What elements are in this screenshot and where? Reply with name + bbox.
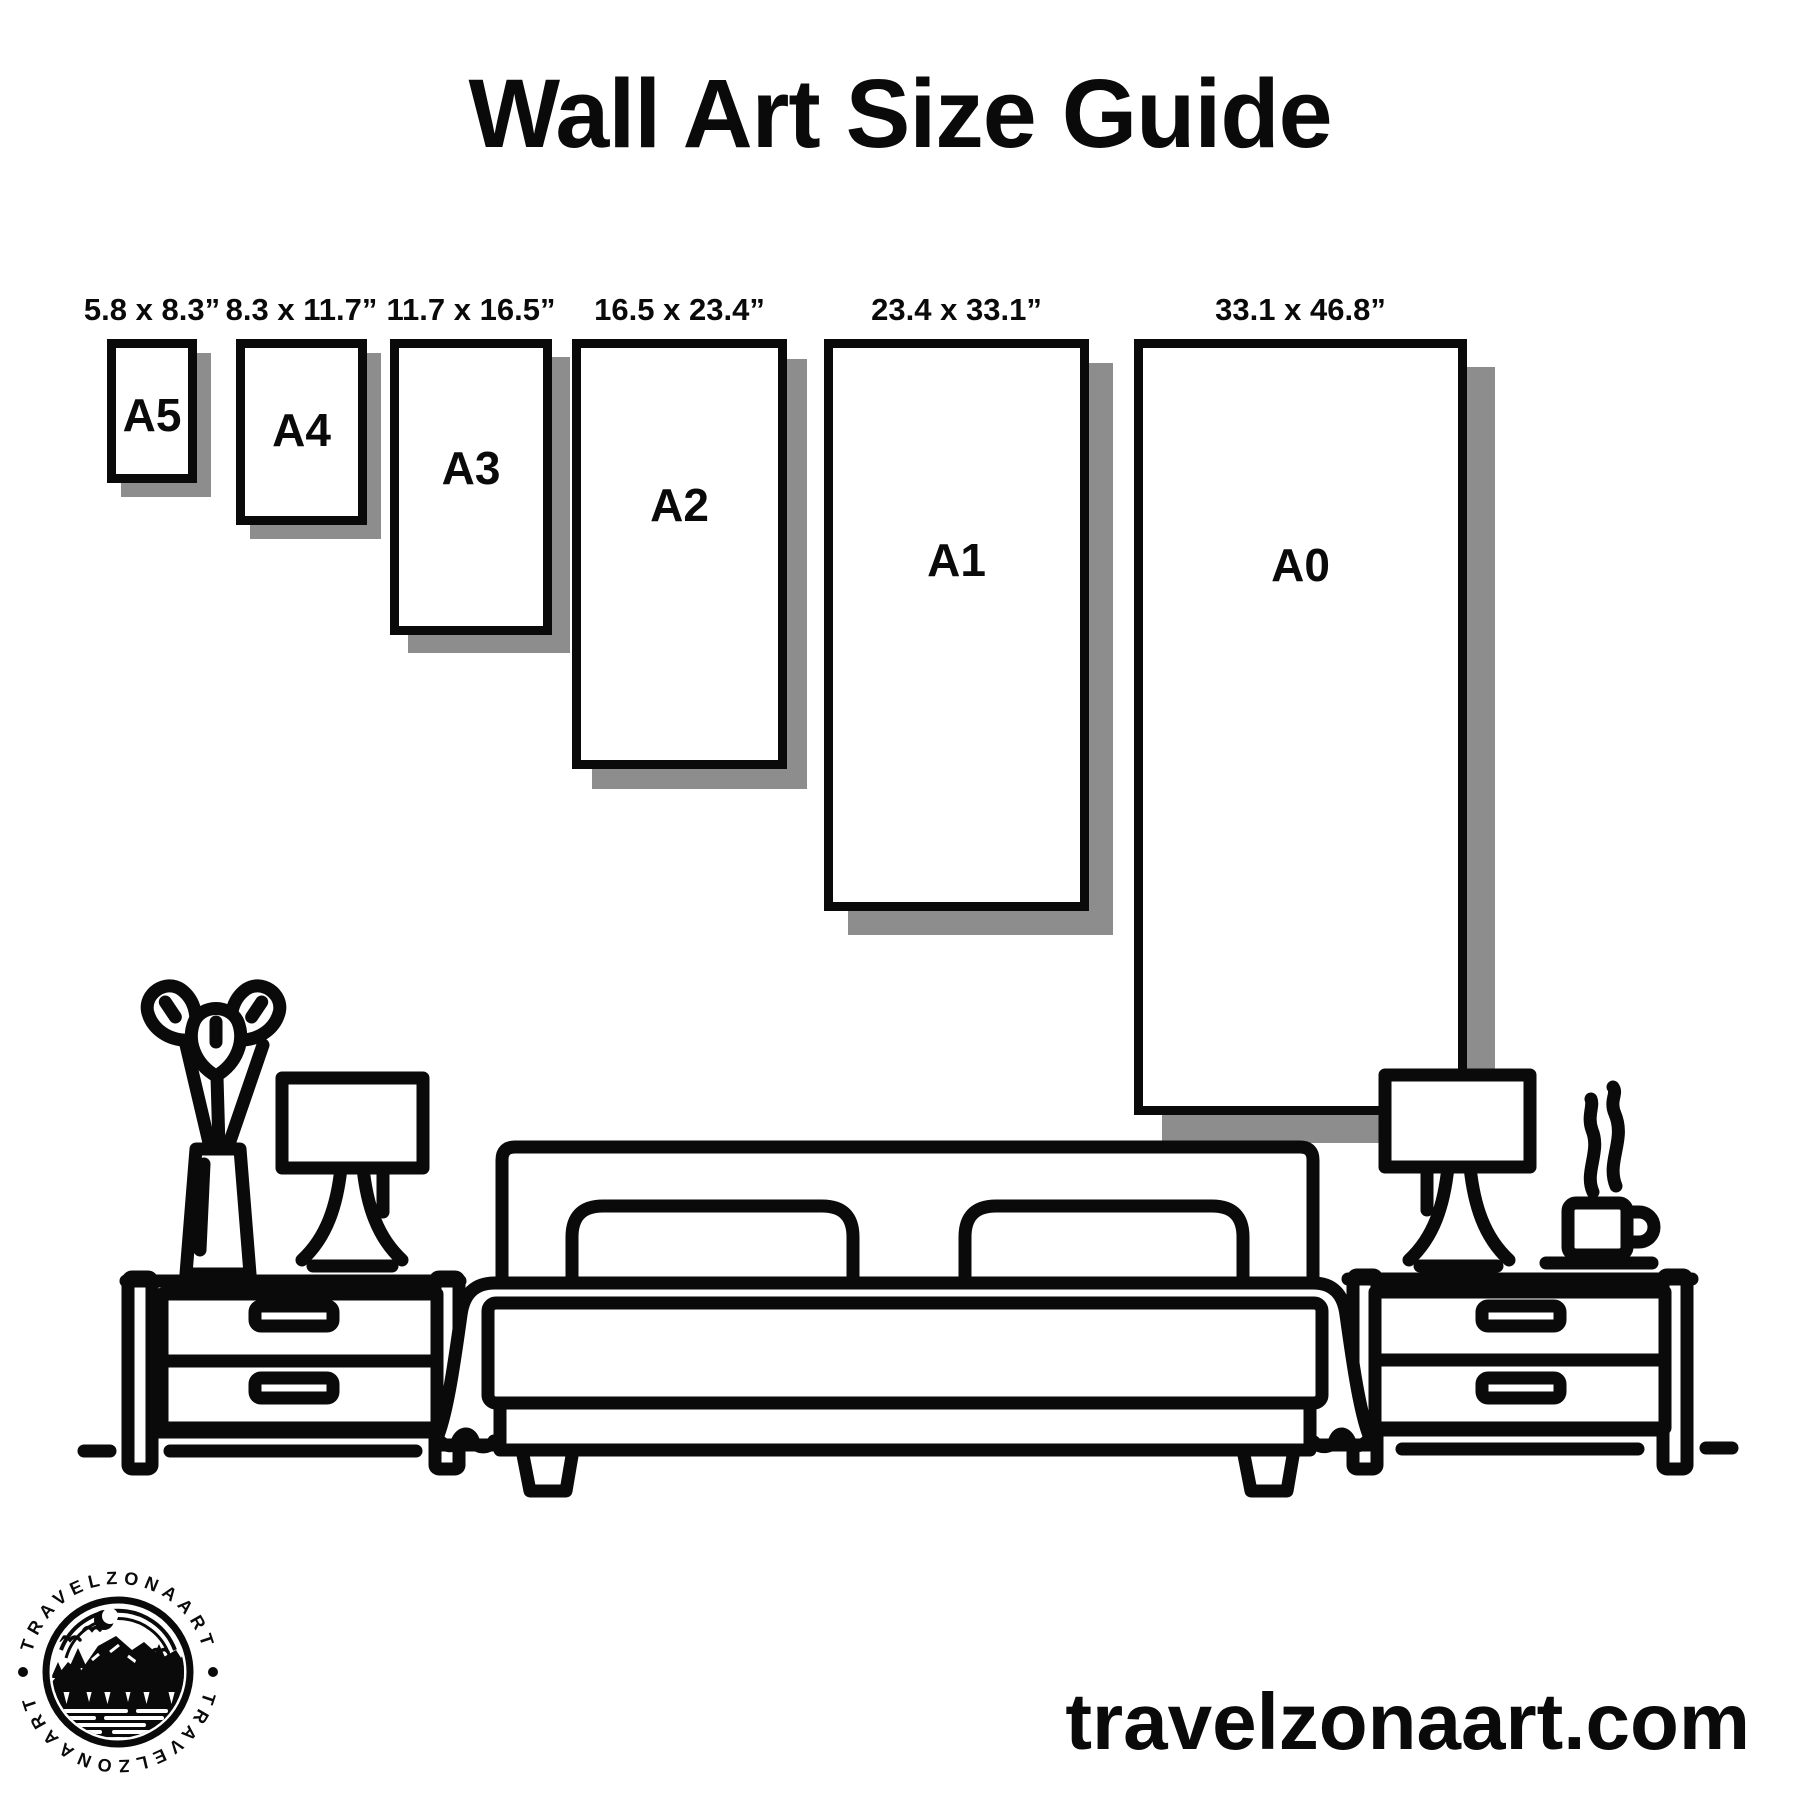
right-nightstand-icon — [1348, 1275, 1692, 1469]
frame-size-label: 8.3 x 11.7” — [226, 292, 378, 328]
frame-size-label: 16.5 x 23.4” — [594, 292, 765, 328]
frame-size-label: 33.1 x 46.8” — [1215, 292, 1386, 328]
pillow-icon — [965, 1206, 1243, 1282]
right-table-lamp-icon — [1385, 1075, 1530, 1266]
frame-letter-label: A0 — [1271, 538, 1330, 592]
logo-dot — [18, 1667, 28, 1677]
pillow-icon — [572, 1206, 853, 1282]
brand-logo-badge: TRAVELZONAART TRAVELZONAART — [8, 1552, 238, 1800]
left-table-lamp-icon — [282, 1078, 423, 1266]
left-nightstand-icon — [126, 1277, 460, 1469]
coffee-cup-icon — [1546, 1087, 1654, 1263]
bedroom-illustration — [0, 850, 1800, 1550]
poster-frame — [572, 339, 787, 769]
frame-size-label: 5.8 x 8.3” — [84, 292, 220, 328]
frame-size-label: 11.7 x 16.5” — [387, 292, 556, 328]
bed-leg — [1243, 1450, 1294, 1491]
bed-icon — [437, 1147, 1370, 1491]
frame-letter-label: A5 — [123, 388, 182, 442]
frame-letter-label: A1 — [927, 533, 986, 587]
frame-letter-label: A3 — [442, 441, 501, 495]
frame-letter-label: A2 — [650, 478, 709, 532]
bed-leg — [522, 1450, 573, 1491]
poster-frame — [824, 339, 1089, 911]
website-url: travelzonaart.com — [1065, 1676, 1750, 1768]
logo-dot — [208, 1667, 218, 1677]
flower-vase-icon — [139, 977, 289, 1274]
frame-letter-label: A4 — [272, 403, 331, 457]
frame-size-label: 23.4 x 33.1” — [871, 292, 1042, 328]
wall-art-size-guide-poster: Wall Art Size Guide 5.8 x 8.3”A58.3 x 11… — [0, 0, 1800, 1800]
page-title: Wall Art Size Guide — [0, 58, 1800, 170]
